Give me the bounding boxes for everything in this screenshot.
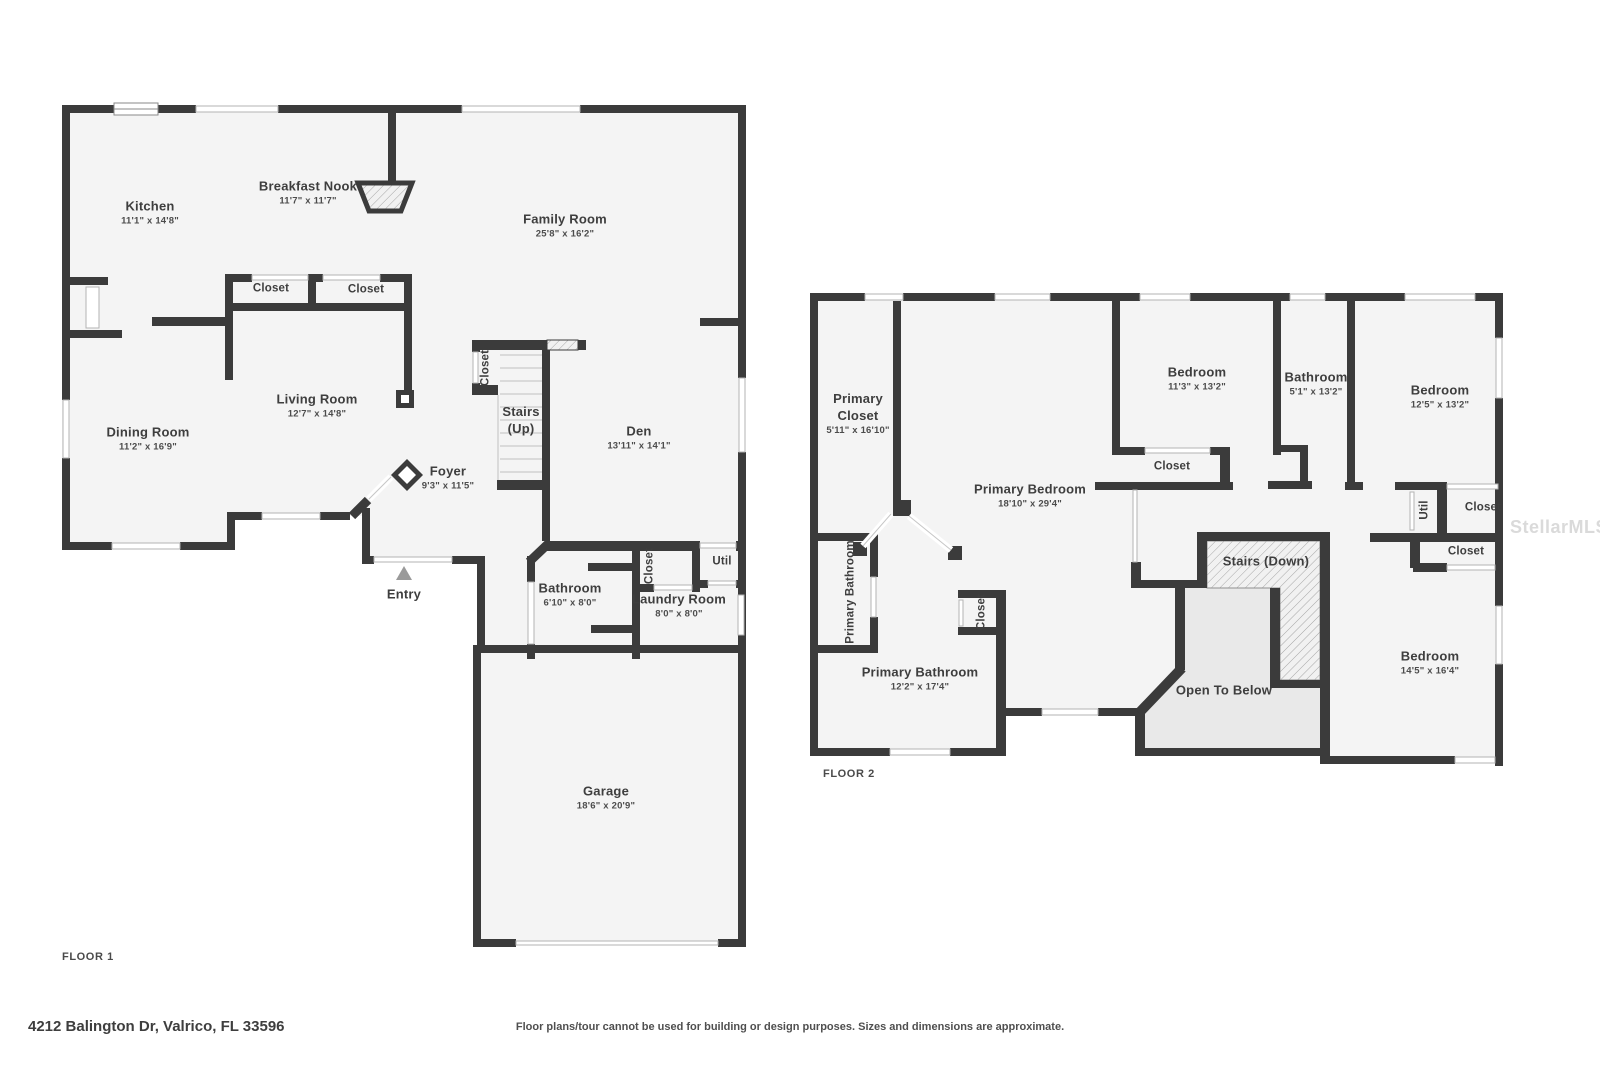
room-label-living-room: Living Room12'7" x 14'8" (277, 391, 358, 420)
room-label-closet-2: Closet (348, 283, 384, 298)
room-label-stairs-down: Stairs (Down) (1223, 554, 1309, 571)
room-label-closet-right-1: Closet (1465, 501, 1501, 516)
room-label-bedroom-2: Bedroom12'5" x 13'2" (1411, 382, 1469, 411)
floor2-plan (810, 293, 1503, 766)
room-label-closet-right-2: Closet (1448, 545, 1484, 560)
disclaimer-text: Floor plans/tour cannot be used for buil… (516, 1021, 1064, 1033)
room-label-laundry-closet: Closet (643, 548, 658, 584)
floorplan-canvas (0, 0, 1600, 1066)
room-label-foyer: Foyer9'3" x 11'5" (422, 463, 474, 492)
floorplan-page: Kitchen11'1" x 14'8"Breakfast Nook11'7" … (0, 0, 1600, 1066)
room-label-stairs-up: Stairs(Up) (502, 404, 539, 438)
room-label-primary-bathroom-closet: Closet (975, 594, 990, 630)
room-label-primary-bathroom: Primary Bathroom12'2" x 17'4" (862, 664, 979, 693)
property-address: 4212 Balington Dr, Valrico, FL 33596 (28, 1018, 285, 1035)
floor2-tag: FLOOR 2 (823, 768, 875, 780)
room-label-den: Den13'11" x 14'1" (607, 423, 670, 452)
room-label-entry: Entry (387, 587, 421, 604)
room-label-bedroom-3: Bedroom14'5" x 16'4" (1401, 648, 1459, 677)
entry-marker-icon (396, 566, 412, 580)
room-label-bedroom-1: Bedroom11'3" x 13'2" (1168, 364, 1226, 393)
room-label-breakfast-nook: Breakfast Nook11'7" x 11'7" (259, 178, 357, 207)
room-label-family-room: Family Room25'8" x 16'2" (523, 211, 607, 240)
room-label-util: Util (712, 555, 731, 570)
room-label-util-2: Util (1418, 500, 1433, 519)
floor1-plan (62, 103, 746, 947)
room-label-open-to-below: Open To Below (1176, 683, 1272, 700)
room-label-primary-closet: PrimaryCloset5'11" x 16'10" (826, 391, 889, 437)
room-label-garage: Garage18'6" x 20'9" (577, 783, 635, 812)
room-label-closet-1: Closet (253, 282, 289, 297)
room-label-primary-bathroom-small: Primary Bathroom (844, 540, 859, 644)
room-label-laundry-room: Laundry Room8'0" x 8'0" (632, 591, 726, 620)
floor1-tag: FLOOR 1 (62, 951, 114, 963)
fireplace (358, 183, 412, 211)
room-label-stairs-closet: Closet (479, 350, 494, 386)
room-label-primary-bedroom: Primary Bedroom18'10" x 29'4" (974, 481, 1086, 510)
room-label-bathroom: Bathroom6'10" x 8'0" (539, 580, 602, 609)
room-label-bathroom-2: Bathroom5'1" x 13'2" (1285, 369, 1348, 398)
room-label-bedroom-1-closet: Closet (1154, 460, 1190, 475)
room-label-kitchen: Kitchen11'1" x 14'8" (121, 198, 179, 227)
room-label-dining-room: Dining Room11'2" x 16'9" (106, 424, 189, 453)
stellar-mls-watermark: StellarMLS (1510, 517, 1600, 538)
